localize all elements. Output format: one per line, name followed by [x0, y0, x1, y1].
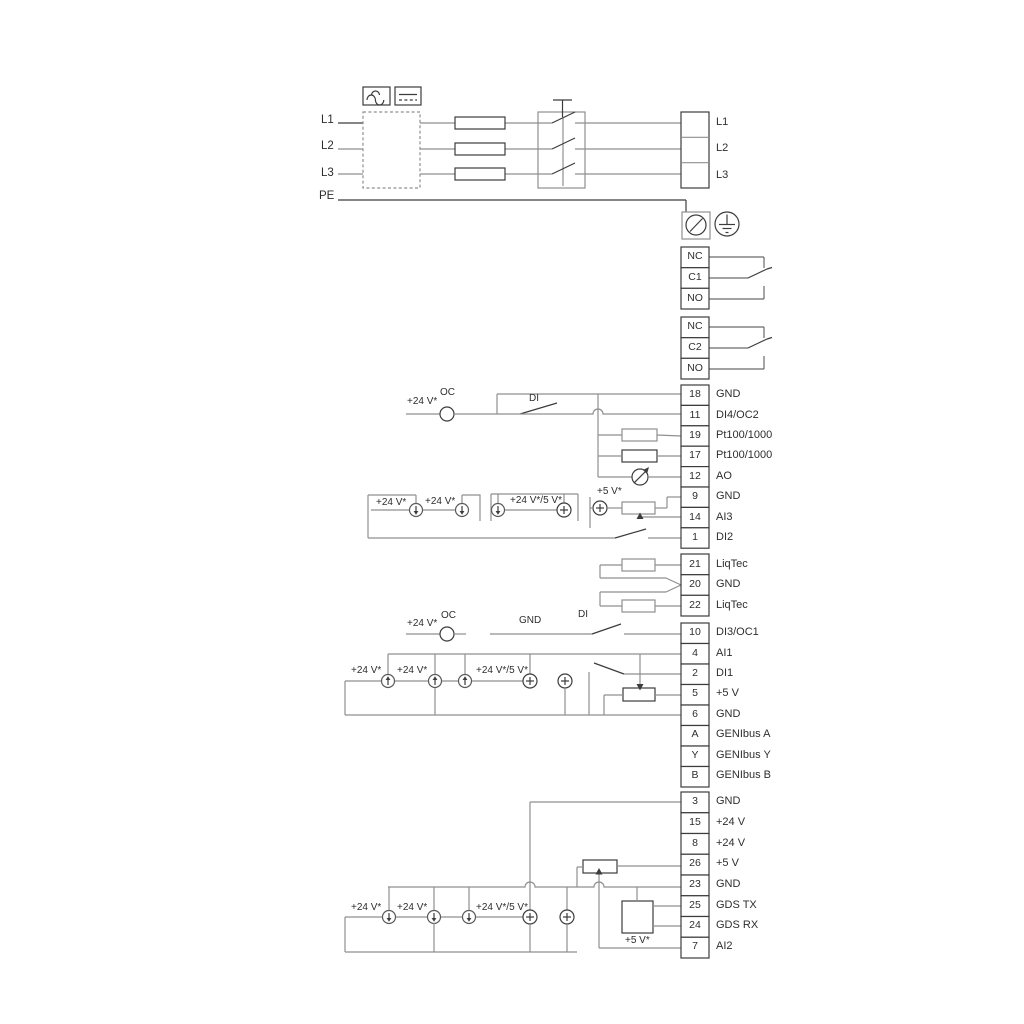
terminal-number: 2 [681, 668, 709, 679]
terminal-label: GND [716, 879, 740, 890]
terminal-label: GND [716, 491, 740, 502]
terminal-number: Y [681, 750, 709, 761]
terminal-label: GND [716, 389, 740, 400]
terminal-label: AI1 [716, 648, 733, 659]
terminal-label: AO [716, 471, 732, 482]
voltage-source-icon [523, 910, 574, 924]
terminal-number: 20 [681, 579, 709, 590]
relay2-c2: C2 [681, 342, 709, 353]
plus24-label: +24 V* [351, 666, 381, 676]
fuse-l3-icon [455, 168, 505, 180]
fuse-l1-icon [455, 117, 505, 129]
terminal-label: +5 V [716, 688, 739, 699]
io3-circuit [345, 802, 681, 952]
oc-label: OC [440, 388, 455, 398]
terminal-number: 22 [681, 600, 709, 611]
emc-filter-box [363, 112, 420, 188]
terminal-label: +5 V [716, 858, 739, 869]
mains-out-l1-label: L1 [716, 117, 728, 128]
terminal-number: 10 [681, 627, 709, 638]
terminal-number: 6 [681, 709, 709, 720]
fuse-l2-icon [455, 143, 505, 155]
ac-symbol-icon [363, 87, 390, 105]
resistor-icon [622, 429, 657, 441]
voltage-source-icon [523, 674, 572, 688]
io1-circuit [368, 394, 681, 538]
terminal-number: 15 [681, 817, 709, 828]
plus24-label: +24 V* [397, 903, 427, 913]
ground-icon [715, 212, 739, 236]
terminal-number: 9 [681, 491, 709, 502]
terminal-number: 26 [681, 858, 709, 869]
terminal-number: 17 [681, 450, 709, 461]
plus24-label: +24 V* [407, 397, 437, 407]
terminal-number: 3 [681, 796, 709, 807]
relay1-c1: C1 [681, 272, 709, 283]
plus5-label: +5 V* [597, 487, 622, 497]
wiring-diagram: L1 L2 L3 PE L1 L2 L3 NC C1 NO NC C2 NO 1… [0, 0, 1024, 1024]
diagram-canvas [0, 0, 1024, 1024]
plus5-label: +5 V* [625, 936, 650, 946]
terminal-number: 4 [681, 648, 709, 659]
mains-in-l3-label: L3 [321, 168, 334, 180]
terminal-label: +24 V [716, 838, 745, 849]
terminal-label: DI3/OC1 [716, 627, 759, 638]
terminal-number: 19 [681, 430, 709, 441]
terminal-label: Pt100/1000 [716, 430, 772, 441]
di-label: DI [578, 610, 588, 620]
terminal-number: 25 [681, 900, 709, 911]
terminal-label: Pt100/1000 [716, 450, 772, 461]
mains-terminal-block [681, 112, 709, 188]
terminal-number: B [681, 770, 709, 781]
open-collector-icon [440, 627, 454, 641]
voltage-source-icon [557, 501, 607, 517]
mains-out-l2-label: L2 [716, 143, 728, 154]
terminal-number: 8 [681, 838, 709, 849]
terminal-label: AI3 [716, 512, 733, 523]
potentiometer-icon [623, 688, 655, 701]
terminal-number: 7 [681, 941, 709, 952]
terminal-label: GDS TX [716, 900, 757, 911]
mains-in-l1-label: L1 [321, 115, 334, 127]
terminal-label: DI2 [716, 532, 733, 543]
terminal-label: GENIbus A [716, 729, 770, 740]
relay2-no: NO [681, 363, 709, 374]
resistor-icon [622, 559, 655, 571]
liqtec-circuit [600, 559, 681, 612]
gnd-label: GND [519, 616, 541, 626]
plus24-label: +24 V* [397, 666, 427, 676]
resistor-icon [622, 600, 655, 612]
terminal-number: 21 [681, 559, 709, 570]
terminal-label: LiqTec [716, 559, 748, 570]
plus24-label: +24 V* [376, 498, 406, 508]
terminal-label: AI2 [716, 941, 733, 952]
terminal-number: 23 [681, 879, 709, 890]
terminal-number: 24 [681, 920, 709, 931]
oc-label: OC [441, 611, 456, 621]
terminal-label: +24 V [716, 817, 745, 828]
resistor-icon [622, 450, 657, 462]
plus24-label: +24 V* [351, 903, 381, 913]
open-collector-icon [440, 407, 454, 421]
terminal-label: LiqTec [716, 600, 748, 611]
terminal-label: GDS RX [716, 920, 758, 931]
terminal-label: GND [716, 579, 740, 590]
potentiometer-icon [622, 502, 655, 514]
terminal-number: 5 [681, 688, 709, 699]
plus24-5v-label: +24 V*/5 V* [476, 666, 528, 676]
relay2-nc: NC [681, 321, 709, 332]
mains-in-l2-label: L2 [321, 141, 334, 153]
terminal-number: 11 [681, 410, 709, 421]
gds-sensor-box [622, 901, 653, 933]
terminal-label: GND [716, 709, 740, 720]
relay1-no: NO [681, 293, 709, 304]
plus24-5v-label: +24 V*/5 V* [476, 903, 528, 913]
plus24-label: +24 V* [407, 619, 437, 629]
terminal-number: 1 [681, 532, 709, 543]
dc-symbol-icon [395, 87, 421, 105]
terminal-number: A [681, 729, 709, 740]
terminal-number: 14 [681, 512, 709, 523]
mains-out-l3-label: L3 [716, 170, 728, 181]
terminal-label: GENIbus B [716, 770, 771, 781]
plus24-label: +24 V* [425, 497, 455, 507]
terminal-label: DI4/OC2 [716, 410, 759, 421]
main-switch-icon [538, 100, 585, 188]
terminal-number: 12 [681, 471, 709, 482]
mains-section [338, 87, 739, 239]
terminal-label: GND [716, 796, 740, 807]
mains-in-pe-label: PE [319, 191, 334, 203]
plus24-5v-label: +24 V*/5 V* [510, 496, 562, 506]
relay1-nc: NC [681, 251, 709, 262]
analog-output-meter-icon [598, 467, 681, 485]
pe-screw-terminal-icon [682, 212, 710, 239]
di-label: DI [529, 394, 539, 404]
terminal-label: DI1 [716, 668, 733, 679]
terminal-label: GENIbus Y [716, 750, 771, 761]
terminal-number: 18 [681, 389, 709, 400]
